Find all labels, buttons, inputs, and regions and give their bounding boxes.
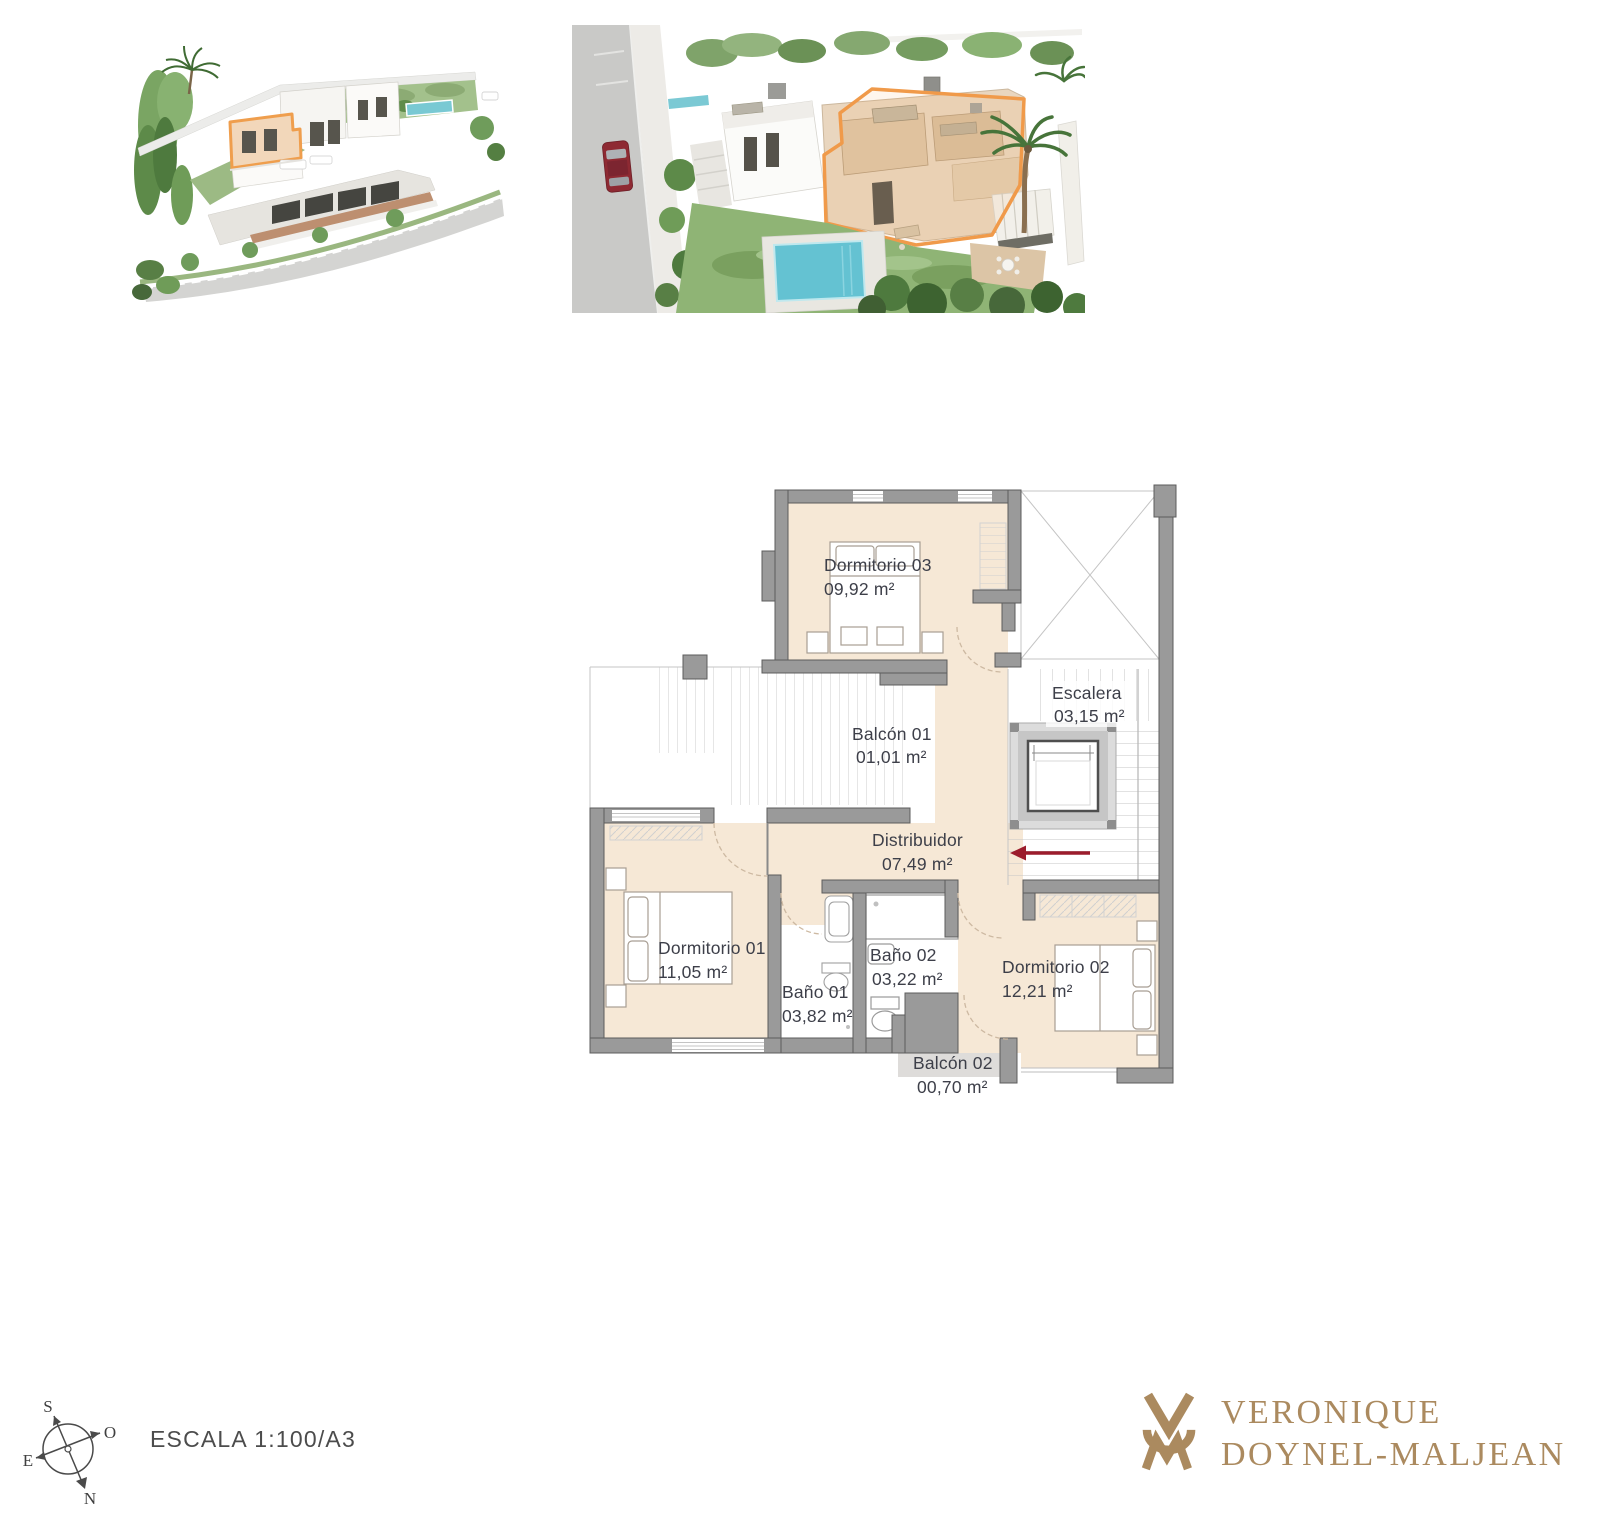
- aerial-render-closeup: [572, 25, 1085, 313]
- closet: [980, 523, 1006, 589]
- room-name: Balcón 02: [913, 1053, 993, 1073]
- room-name: Dormitorio 01: [658, 938, 766, 958]
- brand-monogram-icon: [1131, 1392, 1207, 1472]
- main-villa: [822, 77, 1054, 251]
- room-name: Dormitorio 02: [1002, 957, 1110, 977]
- floor-plan: Dormitorio 03 09,92 m² Escalera 03,15 m²…: [560, 455, 1220, 1115]
- perimeter-wall-right: [1058, 121, 1084, 265]
- double-height-void: [1021, 491, 1159, 659]
- room-area: 12,21 m²: [1002, 981, 1073, 1001]
- compass-north-label: N: [84, 1489, 96, 1508]
- wardrobe: [1040, 895, 1136, 917]
- bushes-bottom-right: [858, 275, 1085, 313]
- room-area: 07,49 m²: [882, 854, 953, 874]
- aerial-render-wide: [130, 30, 510, 308]
- column: [683, 655, 707, 679]
- room-area: 01,01 m²: [856, 747, 927, 767]
- entry-steps: [690, 140, 732, 211]
- brand-logo: VERONIQUE DOYNEL-MALJEAN: [1131, 1392, 1566, 1476]
- brand-name: VERONIQUE DOYNEL-MALJEAN: [1221, 1392, 1566, 1476]
- elevator-shaft: [1010, 723, 1116, 829]
- north-arrow-icon: [76, 1477, 87, 1489]
- compass-west-label: O: [104, 1423, 116, 1442]
- top-hedges: [686, 29, 1082, 67]
- red-car: [602, 140, 633, 192]
- terrace-window-line: [1021, 1068, 1117, 1072]
- room-area: 11,05 m²: [658, 962, 727, 982]
- compass-south-label: S: [43, 1397, 52, 1416]
- neighbor-pool: [668, 95, 709, 109]
- room-name: Escalera: [1052, 683, 1122, 703]
- brand-name-line2: DOYNEL-MALJEAN: [1221, 1434, 1566, 1476]
- room-name: Balcón 01: [852, 724, 932, 744]
- room-area: 03,82 m²: [782, 1006, 853, 1026]
- room-area: 03,22 m²: [872, 969, 943, 989]
- villa-unit-highlight-outline: [824, 89, 1024, 245]
- room-area: 03,15 m²: [1054, 706, 1125, 726]
- brand-name-line1: VERONIQUE: [1221, 1392, 1566, 1434]
- compass-rose: S O E N: [18, 1386, 128, 1508]
- room-name: Distribuidor: [872, 830, 963, 850]
- room-name: Baño 02: [870, 945, 937, 965]
- compass-east-label: E: [23, 1451, 33, 1470]
- neighbor-villa: [722, 83, 824, 201]
- room-name: Baño 01: [782, 982, 849, 1002]
- room-area: 09,92 m²: [824, 579, 895, 599]
- room-name: Dormitorio 03: [824, 555, 932, 575]
- room-area: 00,70 m²: [917, 1077, 988, 1097]
- scale-label: ESCALA 1:100/A3: [150, 1426, 356, 1453]
